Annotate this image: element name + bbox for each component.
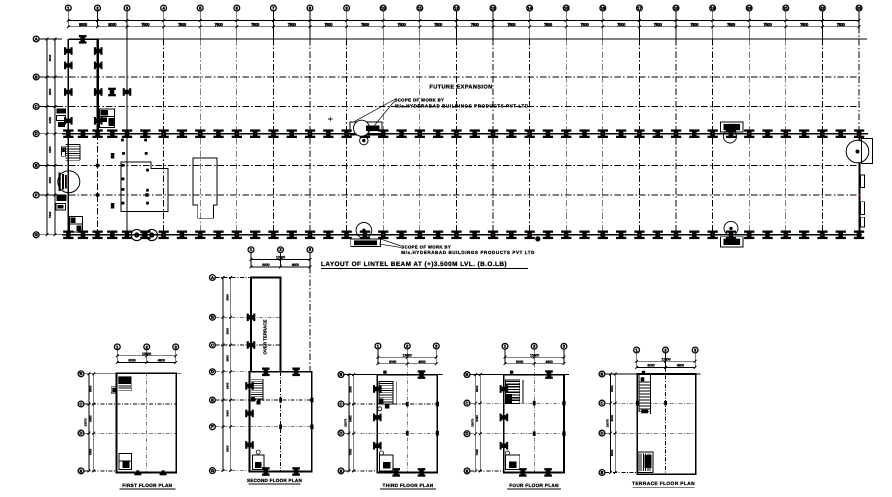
svg-text:18: 18 <box>674 5 679 10</box>
svg-text:7500: 7500 <box>581 22 590 27</box>
svg-text:6000: 6000 <box>262 263 269 267</box>
svg-text:4600: 4600 <box>545 360 552 364</box>
svg-text:M/s.HYDERABAD BUILDINGS PRODUC: M/s.HYDERABAD BUILDINGS PRODUCTS PVT LTD <box>395 104 529 109</box>
svg-text:4600: 4600 <box>418 360 425 364</box>
svg-text:D: D <box>211 369 214 374</box>
svg-text:D: D <box>35 131 38 136</box>
svg-text:8000: 8000 <box>610 449 614 456</box>
svg-text:B: B <box>601 371 604 376</box>
svg-text:12: 12 <box>454 5 459 10</box>
svg-text:5450: 5450 <box>89 415 93 422</box>
svg-text:E: E <box>35 163 38 168</box>
svg-text:14: 14 <box>527 5 532 10</box>
svg-text:SCOPE OF WORK BY: SCOPE OF WORK BY <box>401 245 451 250</box>
svg-text:15: 15 <box>564 5 569 10</box>
svg-text:7500: 7500 <box>654 22 663 27</box>
svg-text:B: B <box>466 372 469 377</box>
svg-text:7950: 7950 <box>475 449 479 456</box>
svg-text:7500: 7500 <box>361 22 370 27</box>
svg-text:E: E <box>340 468 343 473</box>
svg-text:7950: 7950 <box>89 448 93 455</box>
svg-text:6000: 6000 <box>610 414 614 421</box>
svg-text:23070: 23070 <box>344 418 348 426</box>
svg-text:SECOND FLOOR PLAN: SECOND FLOOR PLAN <box>247 478 302 483</box>
svg-text:23: 23 <box>857 5 862 10</box>
svg-text:5450: 5450 <box>475 415 479 422</box>
svg-text:E: E <box>80 468 83 473</box>
svg-text:FIRST FLOOR PLAN: FIRST FLOOR PLAN <box>122 483 172 488</box>
svg-text:D: D <box>466 431 469 436</box>
svg-text:C: C <box>466 401 469 406</box>
svg-text:5800: 5800 <box>89 385 93 392</box>
svg-text:7500: 7500 <box>141 22 150 27</box>
svg-text:G: G <box>35 232 38 237</box>
svg-text:7500: 7500 <box>837 22 846 27</box>
svg-text:C: C <box>35 104 38 109</box>
svg-text:3600: 3600 <box>225 355 229 362</box>
svg-text:21: 21 <box>784 5 789 10</box>
svg-text:5800: 5800 <box>349 386 353 393</box>
svg-text:FUTURE EXPANSION: FUTURE EXPANSION <box>429 85 492 91</box>
svg-text:7500: 7500 <box>398 22 407 27</box>
svg-text:4600: 4600 <box>677 364 684 368</box>
svg-text:TERRACE FLOOR PLAN: TERRACE FLOOR PLAN <box>632 481 695 487</box>
svg-text:C: C <box>601 401 604 406</box>
svg-text:5800: 5800 <box>475 385 479 392</box>
svg-text:B: B <box>80 371 83 376</box>
svg-text:8000: 8000 <box>48 54 52 61</box>
svg-text:B: B <box>340 372 343 377</box>
svg-text:7500: 7500 <box>215 22 224 27</box>
svg-text:G: G <box>211 468 214 473</box>
svg-text:13600: 13600 <box>530 353 539 357</box>
svg-text:3500: 3500 <box>225 327 229 334</box>
svg-text:SCOPE OF WORK BY: SCOPE OF WORK BY <box>395 98 445 103</box>
svg-text:8000: 8000 <box>79 22 88 27</box>
svg-text:6000: 6000 <box>128 359 135 363</box>
svg-text:D: D <box>340 431 343 436</box>
svg-text:20: 20 <box>747 5 752 10</box>
svg-text:D: D <box>80 431 83 436</box>
svg-text:16: 16 <box>601 5 606 10</box>
svg-text:6000: 6000 <box>610 385 614 392</box>
svg-text:7500: 7500 <box>288 22 297 27</box>
svg-text:3400: 3400 <box>225 410 229 417</box>
svg-text:E: E <box>211 397 214 402</box>
svg-text:THIRD FLOOR PLAN: THIRD FLOOR PLAN <box>383 483 434 488</box>
svg-text:13600: 13600 <box>142 352 151 356</box>
svg-text:13: 13 <box>491 5 496 10</box>
svg-text:7500: 7500 <box>251 22 260 27</box>
svg-text:7950: 7950 <box>48 211 52 218</box>
svg-text:13600: 13600 <box>403 354 412 358</box>
svg-text:5450: 5450 <box>48 116 52 123</box>
svg-text:B: B <box>211 315 214 320</box>
svg-text:6350: 6350 <box>48 146 52 153</box>
svg-text:4600: 4600 <box>292 263 299 267</box>
svg-text:5600: 5600 <box>225 445 229 452</box>
svg-text:22: 22 <box>820 5 825 10</box>
svg-text:E: E <box>466 468 469 473</box>
svg-text:12000: 12000 <box>661 358 670 362</box>
svg-text:23070: 23070 <box>605 419 609 427</box>
svg-text:8000: 8000 <box>108 22 117 27</box>
svg-text:23070: 23070 <box>84 418 88 426</box>
svg-text:7500: 7500 <box>764 22 773 27</box>
svg-text:6000: 6000 <box>389 360 396 364</box>
svg-text:10: 10 <box>381 5 386 10</box>
svg-text:C: C <box>80 401 83 406</box>
svg-text:7500: 7500 <box>617 22 626 27</box>
svg-text:7500: 7500 <box>690 22 699 27</box>
svg-text:A: A <box>35 36 38 41</box>
svg-text:3400: 3400 <box>225 382 229 389</box>
svg-text:7500: 7500 <box>324 22 333 27</box>
svg-text:C: C <box>211 342 214 347</box>
svg-text:E: E <box>601 470 604 475</box>
svg-text:7500: 7500 <box>507 22 516 27</box>
svg-text:M/s.HYDERABAD BUILDINGS PRODUC: M/s.HYDERABAD BUILDINGS PRODUCTS PVT LTD <box>401 250 535 255</box>
svg-text:LAYOUT OF LINTEL BEAM AT (+)3.: LAYOUT OF LINTEL BEAM AT (+)3.500M LVL. … <box>321 261 507 268</box>
svg-text:C: C <box>340 401 343 406</box>
svg-text:7500: 7500 <box>471 22 480 27</box>
svg-text:A: A <box>211 275 214 280</box>
svg-text:7500: 7500 <box>544 22 553 27</box>
svg-text:FOUR FLOOR PLAN: FOUR FLOOR PLAN <box>509 483 559 488</box>
svg-text:D: D <box>601 431 604 436</box>
svg-text:12000: 12000 <box>276 256 285 260</box>
svg-text:5800: 5800 <box>225 294 229 301</box>
svg-text:7500: 7500 <box>434 22 443 27</box>
svg-text:7500: 7500 <box>727 22 736 27</box>
svg-text:17: 17 <box>637 5 642 10</box>
svg-text:7500: 7500 <box>178 22 187 27</box>
svg-text:B: B <box>35 74 38 79</box>
svg-text:5900: 5900 <box>48 177 52 184</box>
svg-text:23070: 23070 <box>471 418 475 426</box>
svg-text:7500: 7500 <box>800 22 809 27</box>
svg-text:5800: 5800 <box>48 88 52 95</box>
svg-text:6000: 6000 <box>516 360 523 364</box>
svg-text:OVER TERRACE: OVER TERRACE <box>263 319 268 354</box>
svg-text:19: 19 <box>710 5 715 10</box>
svg-text:4600: 4600 <box>158 359 165 363</box>
svg-text:5450: 5450 <box>349 415 353 422</box>
svg-text:6000: 6000 <box>647 364 654 368</box>
svg-text:7950: 7950 <box>349 448 353 455</box>
